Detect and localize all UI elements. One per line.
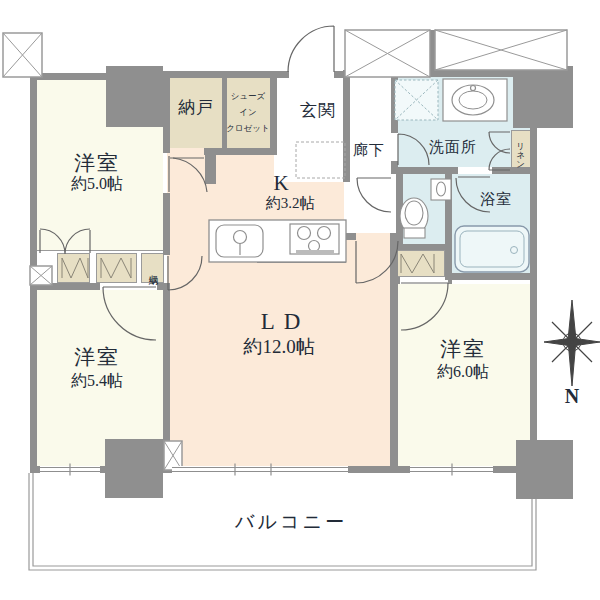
label-washroom: 洗面所 bbox=[429, 139, 477, 156]
label-bedroom2-size: 約5.4帖 bbox=[71, 372, 123, 390]
room-toilet bbox=[403, 174, 445, 247]
label-bedroom1-name: 洋室 bbox=[74, 151, 120, 175]
closet-3 bbox=[396, 250, 445, 277]
compass-icon bbox=[544, 300, 600, 386]
label-linen: リネン bbox=[513, 135, 529, 164]
closet-1 bbox=[57, 253, 90, 283]
label-shoes-in-closet: シューズ イン クロゼット bbox=[226, 88, 270, 136]
label-bedroom2-name: 洋室 bbox=[74, 345, 120, 369]
label-ld-size: 約12.0帖 bbox=[243, 336, 314, 358]
label-storage-room: 納戸 bbox=[178, 98, 214, 118]
label-bedroom3-size: 約6.0帖 bbox=[437, 363, 489, 381]
label-bedroom1-size: 約5.0帖 bbox=[71, 175, 123, 193]
room-bathroom bbox=[452, 174, 530, 273]
room-entrance bbox=[274, 77, 350, 182]
label-closet: 収納 bbox=[148, 267, 159, 269]
label-compass-north: N bbox=[565, 385, 579, 408]
label-kitchen-size: 約3.2帖 bbox=[266, 195, 315, 212]
label-bedroom3-name: 洋室 bbox=[440, 337, 486, 361]
floor-plan: 洋室 約5.0帖 洋室 約5.4帖 洋室 約6.0帖 LD 約12.0帖 K 約… bbox=[0, 0, 600, 600]
label-hallway: 廊下 bbox=[353, 142, 385, 159]
label-kitchen-name: K bbox=[273, 171, 288, 195]
label-ld-name: LD bbox=[261, 309, 310, 335]
label-balcony: バルコニー bbox=[235, 511, 347, 533]
closet-2 bbox=[96, 253, 137, 283]
label-bathroom: 浴室 bbox=[480, 191, 512, 208]
label-entrance: 玄関 bbox=[300, 101, 336, 121]
